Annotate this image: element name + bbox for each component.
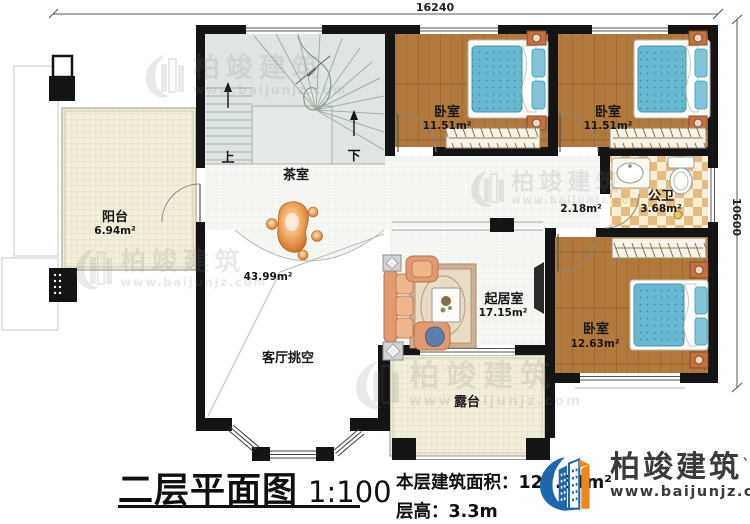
bed-bedroom2 (634, 40, 710, 118)
window-bathroom (708, 168, 718, 222)
logo-website: www.baijunjz.com (610, 484, 750, 500)
floor-plan-page: 16240 10600 (0, 0, 750, 524)
hall-floor-b (385, 156, 395, 230)
dimension-top: 16240 (416, 1, 455, 14)
floor-plan-drawing: 16240 10600 (0, 0, 750, 524)
label-void: 客厅挑空 (262, 350, 314, 366)
floor-area-label: 本层建筑面积： (396, 473, 519, 493)
window-bedroom2 (592, 25, 668, 34)
label-void-area: 43.99m² (244, 271, 293, 283)
dimension-right: 10600 (730, 198, 743, 237)
hall-floor-c (395, 156, 600, 228)
label-balcony: 阳台 (102, 209, 128, 225)
window-bedroom1 (420, 25, 498, 34)
bed-bedroom1 (468, 40, 548, 118)
label-corridor-area: 2.18m² (560, 203, 602, 215)
label-bathroom: 公卫 (648, 189, 674, 204)
label-tea-room: 茶室 (283, 167, 309, 183)
label-living: 起居室 (483, 291, 523, 307)
floor-height-line: 层高：3.3m (396, 498, 498, 523)
closet-bedroom3 (612, 238, 706, 258)
label-living-area: 17.15m² (479, 307, 528, 319)
bay-window-glazing (228, 425, 364, 458)
window-stairs (246, 25, 322, 34)
label-bedroom1: 卧室 (434, 104, 460, 120)
company-logo: 柏竣建筑` www.baijunjz.com (534, 451, 750, 515)
label-terrace: 露台 (454, 394, 480, 410)
label-stairs-down: 下 (347, 149, 360, 164)
bathroom-sink (612, 158, 650, 188)
label-bedroom3-area: 12.63m² (571, 338, 620, 350)
company-logo-icon (534, 451, 606, 515)
label-balcony-area: 6.94m² (94, 225, 136, 237)
tv (534, 262, 544, 314)
label-bedroom1-area: 11.51m² (423, 120, 472, 132)
label-bedroom2: 卧室 (595, 104, 621, 120)
label-bathroom-area: 3.68m² (640, 203, 682, 215)
balcony-floor (62, 108, 196, 270)
label-bedroom2-area: 11.51m² (584, 120, 633, 132)
label-stairs-up: 上 (221, 151, 234, 166)
bed-bedroom3 (630, 280, 708, 350)
floor-height-value: 3.3m (449, 502, 498, 522)
logo-company-name: 柏竣建筑 (610, 450, 742, 485)
window-bedroom3 (575, 373, 685, 388)
title-underline (118, 505, 360, 508)
plan-scale: 1:100 (308, 475, 392, 509)
label-bedroom3: 卧室 (583, 321, 609, 337)
floor-height-label: 层高： (396, 502, 449, 522)
logo-trademark-tick: ` (742, 456, 750, 475)
terrace-railing (416, 456, 526, 460)
